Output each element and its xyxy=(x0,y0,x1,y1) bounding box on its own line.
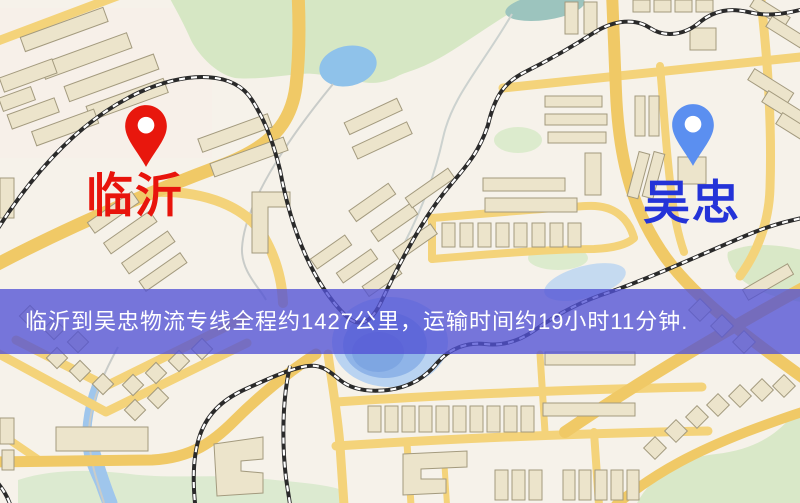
destination-city-label: 吴忠 xyxy=(643,179,741,226)
map-view: 临沂 吴忠 临沂到吴忠物流专线全程约1427公里，运输时间约19小时11分钟. xyxy=(0,0,800,503)
origin-city-label: 临沂 xyxy=(86,172,184,219)
route-info-banner: 临沂到吴忠物流专线全程约1427公里，运输时间约19小时11分钟. xyxy=(0,289,800,354)
destination-pin-icon[interactable] xyxy=(668,100,718,170)
map-background xyxy=(0,0,800,503)
route-info-text: 临沂到吴忠物流专线全程约1427公里，运输时间约19小时11分钟. xyxy=(0,289,800,354)
origin-pin-icon[interactable] xyxy=(121,101,171,171)
